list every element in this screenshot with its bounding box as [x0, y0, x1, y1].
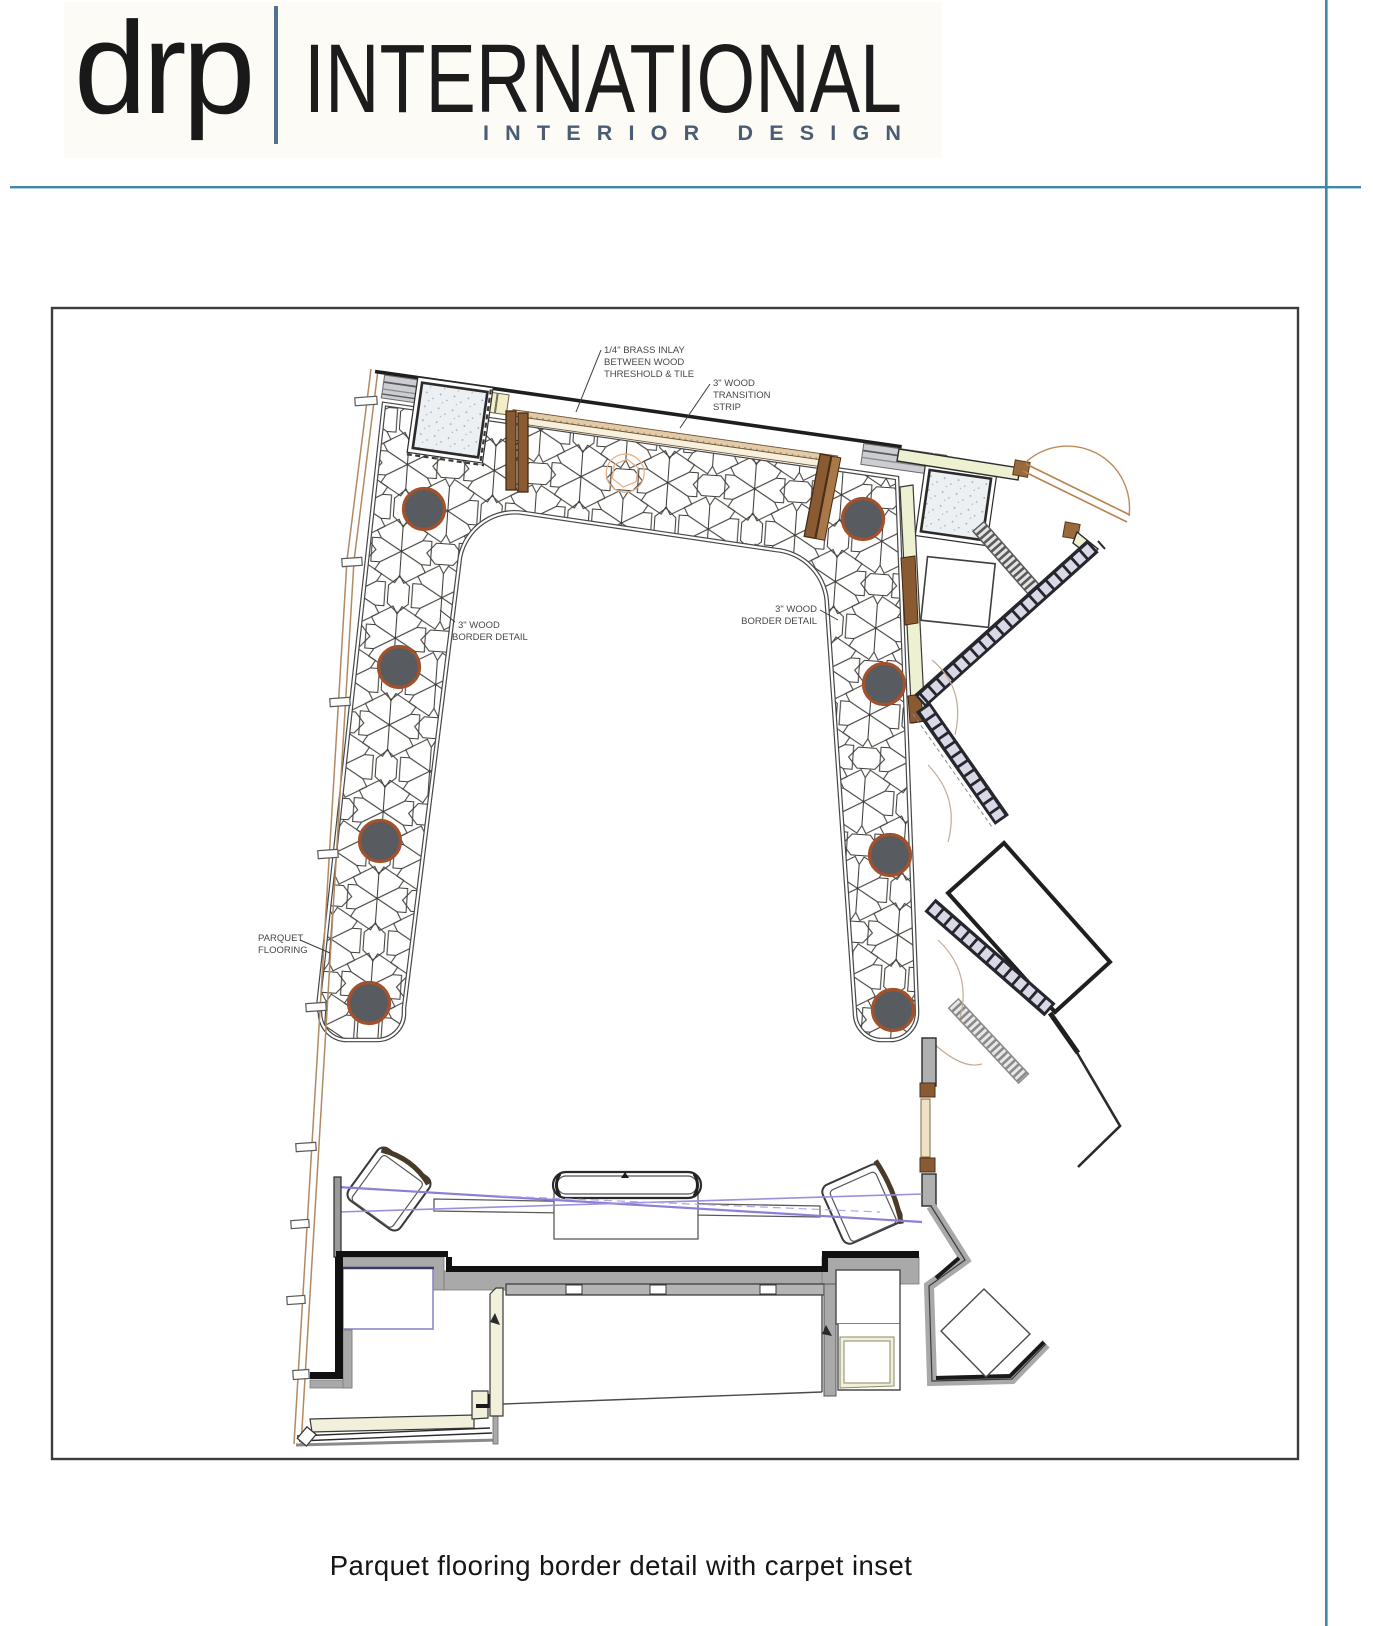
svg-text:3" WOOD: 3" WOOD — [458, 620, 500, 631]
svg-text:TRANSITION: TRANSITION — [713, 390, 771, 401]
svg-text:1/4" BRASS INLAY: 1/4" BRASS INLAY — [604, 345, 685, 356]
svg-text:3" WOOD: 3" WOOD — [775, 604, 817, 615]
svg-text:BORDER DETAIL: BORDER DETAIL — [741, 616, 817, 627]
svg-text:FLOORING: FLOORING — [258, 945, 308, 956]
svg-text:THRESHOLD & TILE: THRESHOLD & TILE — [604, 369, 694, 380]
svg-text:drp: drp — [74, 0, 251, 141]
svg-text:BETWEEN WOOD: BETWEEN WOOD — [604, 357, 684, 368]
svg-text:PARQUET: PARQUET — [258, 933, 303, 944]
svg-text:STRIP: STRIP — [713, 402, 741, 413]
svg-text:INTERNATIONAL: INTERNATIONAL — [304, 24, 902, 133]
svg-text:Parquet flooring border detail: Parquet flooring border detail with carp… — [330, 1550, 913, 1581]
svg-text:3" WOOD: 3" WOOD — [713, 378, 755, 389]
svg-text:INTERIOR DESIGN: INTERIOR DESIGN — [483, 121, 917, 145]
svg-text:BORDER DETAIL: BORDER DETAIL — [452, 632, 528, 643]
